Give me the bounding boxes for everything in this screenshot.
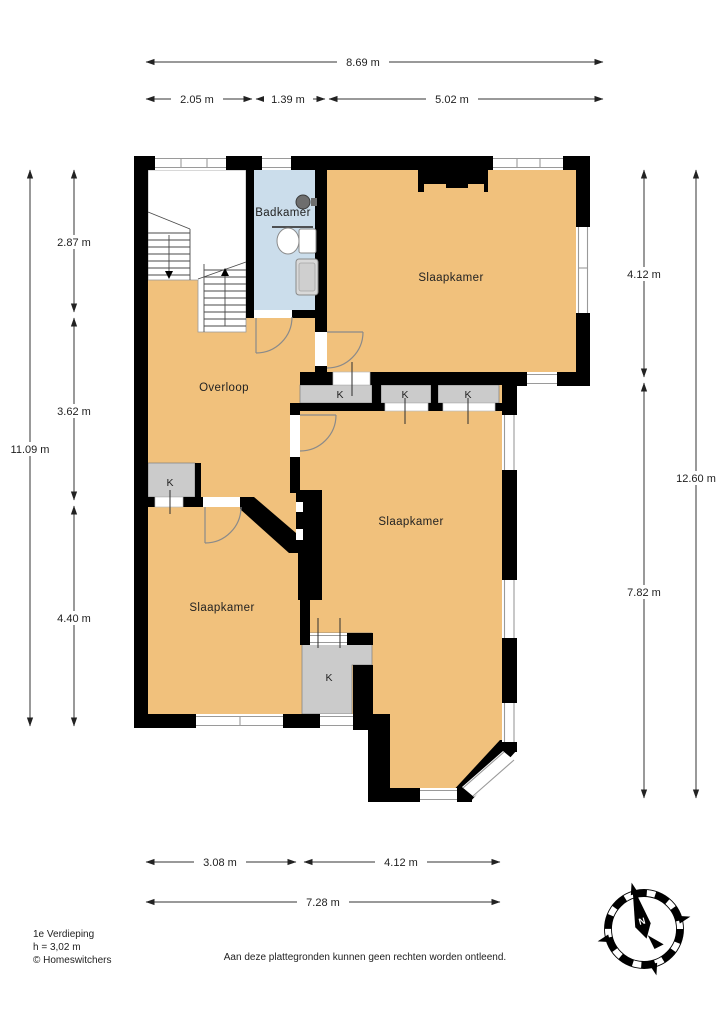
dim-left-seg-2: 3.62 m — [57, 406, 91, 418]
footer: 1e Verdieping h = 3,02 m © Homeswitchers… — [33, 929, 506, 966]
dim-top-seg-1: 2.05 m — [180, 94, 214, 106]
dim-bottom-seg-1: 3.08 m — [203, 857, 237, 869]
dim-top-seg-2: 1.39 m — [271, 94, 305, 106]
closet-k2-label: K — [401, 389, 408, 401]
dim-left-total: 11.09 m — [11, 444, 50, 456]
bedroom-middle-label: Slaapkamer — [378, 516, 443, 528]
compass-rose: N — [597, 882, 692, 977]
dim-top-seg-3: 5.02 m — [435, 94, 469, 106]
toilet-cistern — [299, 229, 316, 253]
toilet-bowl — [277, 228, 299, 254]
closet-bottom-label: K — [325, 672, 332, 684]
bedroom-top-label: Slaapkamer — [418, 272, 483, 284]
dim-right-seg-1: 4.12 m — [627, 269, 661, 281]
dim-left-seg-1: 2.87 m — [57, 237, 91, 249]
shower-tray-inner — [299, 263, 315, 291]
bathroom-label: Badkamer — [255, 207, 311, 219]
ceiling-height: h = 3,02 m — [33, 942, 81, 953]
shower-mixer-icon — [311, 198, 317, 206]
bedroom-bottom-label: Slaapkamer — [189, 602, 254, 614]
floor-plan-canvas: Badkamer Slaapkamer Overloop Slaapkamer … — [0, 0, 724, 1024]
floor-plan: Badkamer Slaapkamer Overloop Slaapkamer … — [0, 0, 724, 1024]
dim-right-total: 12.60 m — [676, 473, 716, 485]
landing-label: Overloop — [199, 382, 249, 394]
floor-name: 1e Verdieping — [33, 929, 94, 940]
dim-left-seg-3: 4.40 m — [57, 613, 91, 625]
dim-bottom-seg-2: 4.12 m — [384, 857, 418, 869]
closet-k1-label: K — [336, 389, 343, 401]
dim-top-total: 8.69 m — [346, 57, 380, 69]
dim-right-seg-2: 7.82 m — [627, 587, 661, 599]
closet-k3-label: K — [464, 389, 471, 401]
compass-spike-s — [649, 963, 660, 977]
disclaimer: Aan deze plattegronden kunnen geen recht… — [224, 952, 506, 963]
compass-needle-tail — [648, 932, 664, 950]
copyright: © Homeswitchers — [33, 955, 112, 966]
closet-landing-label: K — [166, 477, 173, 489]
dim-bottom-total: 7.28 m — [306, 897, 340, 909]
